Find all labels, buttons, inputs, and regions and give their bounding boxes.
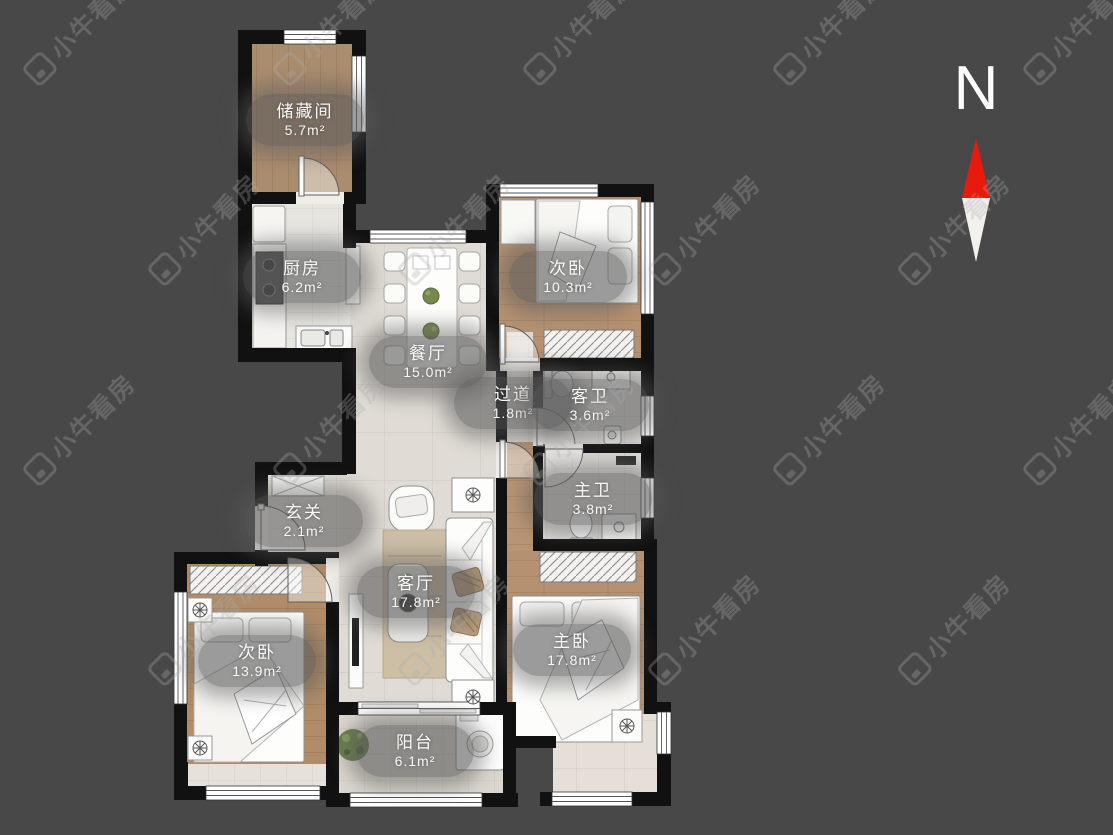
- window: [352, 56, 366, 132]
- kitchen-sink: [296, 326, 352, 350]
- living-sofa: [446, 518, 493, 682]
- guest-bath-toilet-icon: [544, 370, 573, 398]
- balcony-washing-machine-icon: [456, 712, 504, 770]
- kitchen-fridge: [253, 206, 285, 242]
- bedroom-top-bed: [536, 199, 638, 303]
- window: [206, 786, 320, 800]
- living-armchair: [389, 486, 434, 532]
- bedroom-top-wardrobe: [544, 330, 634, 358]
- bedroom-left-wardrobe: [190, 566, 302, 594]
- dining-plant-icon-2: [423, 323, 439, 339]
- living-tv: [352, 618, 359, 666]
- compass-needle-icon: [944, 138, 1008, 262]
- dining-sideboard: [346, 246, 360, 304]
- flower-decal-icon: [620, 719, 634, 733]
- guest-bath-mop-basin-icon: [604, 426, 621, 444]
- flower-decal-icon: [466, 690, 480, 704]
- dining-table: [407, 248, 457, 368]
- flower-decal-icon: [193, 603, 207, 617]
- window: [174, 592, 187, 704]
- dining-plant-icon: [423, 288, 439, 304]
- kitchen-stove: [256, 252, 283, 304]
- living-cushion-2: [450, 607, 482, 636]
- floor-bedroom-left-bay: [188, 764, 326, 788]
- window: [284, 30, 336, 44]
- window: [641, 202, 654, 314]
- compass: N: [944, 58, 1008, 262]
- balcony-plant-icon: [337, 729, 369, 761]
- flower-decal-icon: [193, 741, 207, 755]
- entry-shoe-cabinet: [272, 476, 324, 496]
- window: [641, 396, 654, 436]
- window: [657, 712, 671, 754]
- flower-decal-icon: [466, 488, 480, 502]
- window: [552, 792, 632, 806]
- window: [641, 478, 654, 518]
- bedroom-top-desk: [501, 200, 535, 244]
- window: [350, 793, 482, 807]
- compass-needle-north-half: [962, 138, 990, 198]
- master-wardrobe: [540, 552, 636, 582]
- living-coffee-table: [388, 564, 428, 642]
- window: [500, 184, 598, 197]
- compass-north-label: N: [944, 58, 1008, 120]
- master-bath-radiator-icon: [616, 456, 636, 465]
- floorplan-canvas: 小牛看房 小牛看房 小牛看房 小牛看房 小牛看房 小牛看房 小牛看房 小牛看房 …: [0, 0, 1113, 835]
- master-bath-sink-icon: [602, 514, 636, 540]
- window: [370, 230, 466, 243]
- sliding-door: [358, 702, 480, 715]
- compass-needle-south-half: [962, 198, 990, 262]
